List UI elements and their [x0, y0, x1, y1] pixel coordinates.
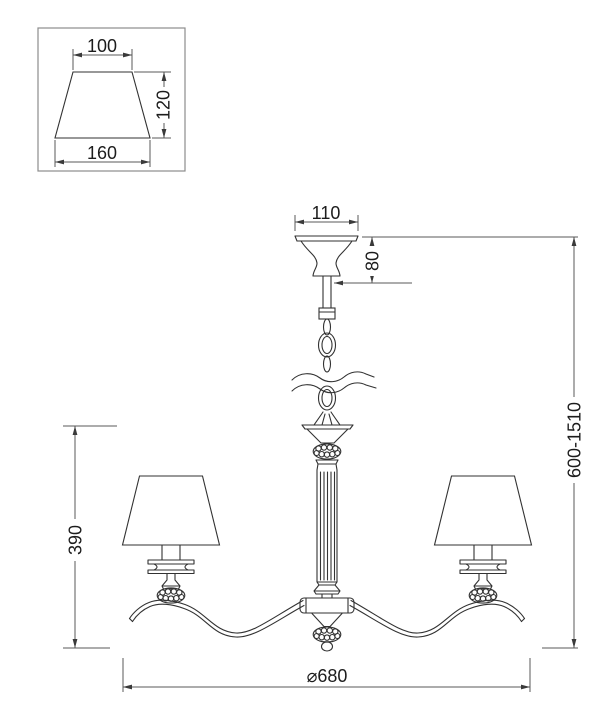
dim-canopy-height: 80 [334, 237, 412, 285]
dim-label-80: 80 [362, 251, 382, 271]
dim-canopy-width: 110 [295, 203, 358, 231]
left-crystal-bead-ball [157, 588, 185, 603]
dim-label-390: 390 [65, 525, 85, 555]
left-lampshade [123, 476, 220, 545]
fluted-column [317, 470, 337, 582]
lower-cone [312, 614, 342, 627]
left-lamp [123, 476, 220, 603]
dim-label-100: 100 [87, 36, 117, 56]
dim-overall-height: 600-1510 [542, 237, 584, 648]
dim-label-120: 120 [153, 90, 173, 120]
upper-cone [307, 429, 348, 443]
technical-drawing-page: 100 160 120 [0, 0, 605, 720]
suspension-chain [292, 308, 376, 425]
upper-plate [302, 425, 353, 429]
ceiling-canopy [295, 236, 358, 308]
dim-shade-bottom-width: 160 [55, 140, 150, 167]
central-column [302, 425, 353, 598]
dim-label-overall-height: 600-1510 [564, 402, 584, 478]
break-wave-upper [292, 372, 374, 382]
right-stem-cup [474, 574, 492, 590]
hub-body [300, 598, 354, 613]
chain-connector [319, 308, 335, 319]
dim-diameter: ⌀680 [123, 658, 530, 692]
right-lampshade [435, 476, 532, 545]
left-stem-cup [162, 574, 180, 590]
center-hub [300, 598, 354, 651]
right-bobeche [460, 560, 506, 574]
upper-collar [316, 460, 338, 470]
dim-body-height: 390 [63, 426, 117, 648]
lower-collar [314, 582, 340, 598]
right-arm [350, 600, 525, 637]
finial-ball [322, 642, 333, 651]
chandelier-dimension-drawing: 100 160 120 [0, 0, 605, 720]
right-candle-sleeve [474, 545, 492, 560]
dim-label-110: 110 [312, 203, 341, 223]
left-candle-sleeve [162, 545, 180, 560]
crystal-bead-ball-lower [313, 627, 341, 642]
left-bobeche [148, 560, 194, 574]
shade-outline [55, 72, 150, 138]
dim-shade-top-width: 100 [73, 36, 132, 70]
left-arm [130, 600, 305, 637]
right-crystal-bead-ball [469, 588, 497, 603]
shade-detail-inset: 100 160 120 [38, 28, 185, 171]
chain-end-tassel [314, 412, 340, 425]
right-lamp [435, 476, 532, 603]
crystal-bead-ball-upper [313, 444, 341, 459]
dim-shade-height: 120 [134, 72, 173, 138]
dim-label-diameter: ⌀680 [307, 666, 348, 686]
dim-label-160: 160 [87, 143, 117, 163]
